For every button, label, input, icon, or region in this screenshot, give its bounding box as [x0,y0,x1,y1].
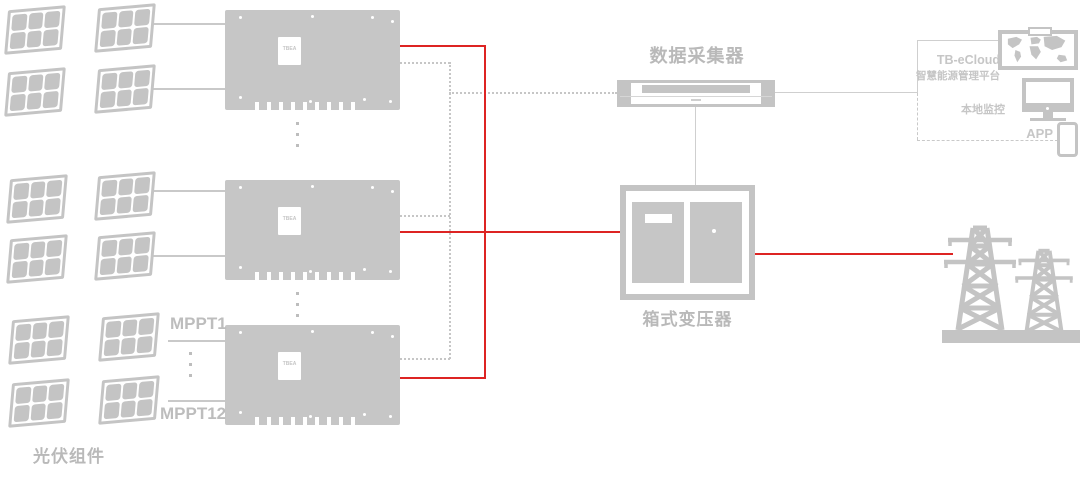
comms-bus [449,62,451,359]
string-inverter: TBEA [225,180,400,280]
power-line-to-transformer [400,231,620,233]
string-wire [150,255,227,257]
inverter-brand-label: TBEA [278,207,301,235]
inverter-brand-label: TBEA [278,352,301,380]
transformer-right-door [690,202,742,283]
transmission-tower-icon [940,222,1080,346]
cloud-platform-name: TB-eCloud [920,53,1000,67]
transformer-left-door [632,202,684,283]
string-wire [150,88,227,90]
collector-logo-mark [691,99,701,101]
world-map-screen-icon [998,30,1078,70]
solar-panel-icon [4,5,66,55]
collector-endcap [761,83,772,104]
comms-line-to-collector [449,92,617,94]
string-inverter: TBEA [225,325,400,425]
power-line [400,377,486,379]
solar-panel-icon [6,234,68,284]
cloud-platform-subtitle: 智慧能源管理平台 [912,68,1000,83]
data-collector-device [617,80,775,107]
cloud-box-border [917,40,918,93]
string-inverter: TBEA [225,10,400,110]
comms-line [400,215,450,217]
inverter-brand-label: TBEA [278,37,301,65]
solar-panel-icon [8,315,70,365]
pv-modules-label: 光伏组件 [33,442,105,467]
string-wire [150,23,227,25]
comms-line [400,358,450,360]
map-screen-mount [1028,27,1052,36]
collector-front-bar [642,85,750,93]
solar-panel-icon [8,378,70,428]
pv-system-diagram: TBEA TBEA TBEA 数据采集器 箱式变压器 [0,0,1080,482]
collector-to-cloud-line [775,92,917,93]
mppt1-label: MPPT1 [170,314,227,334]
transformer-label: 箱式变压器 [600,305,775,330]
solar-panel-icon [6,174,68,224]
comms-line [400,62,450,64]
collector-to-transformer-line [695,107,696,185]
data-collector-label: 数据采集器 [597,42,797,68]
solar-panel-icon [98,312,160,362]
ellipsis-dots [189,352,192,377]
solar-panel-icon [98,375,160,425]
power-line [400,45,486,47]
string-wire [168,340,227,342]
local-monitoring-label: 本地监控 [940,101,1005,117]
app-label: APP [1005,126,1053,141]
transformer-knob [712,229,716,233]
smartphone-icon [1057,122,1078,157]
power-line-to-grid [753,253,953,255]
cloud-box-border [917,40,1003,41]
solar-panel-icon [94,64,156,114]
collector-seam [620,96,772,97]
mppt12-label: MPPT12 [160,404,226,424]
ellipsis-dots [296,292,299,317]
string-wire [150,190,227,192]
transformer-handle [687,241,690,253]
collector-endcap [620,83,631,104]
solar-panel-icon [94,171,156,221]
power-bus [484,45,486,379]
solar-panel-icon [94,231,156,281]
string-wire [168,400,227,402]
box-transformer [620,185,755,300]
cloud-box-border-dashed [917,93,918,140]
transformer-vent [645,214,672,223]
desktop-monitor-icon [1022,78,1074,121]
ellipsis-dots [296,122,299,147]
solar-panel-icon [94,3,156,53]
solar-panel-icon [4,67,66,117]
